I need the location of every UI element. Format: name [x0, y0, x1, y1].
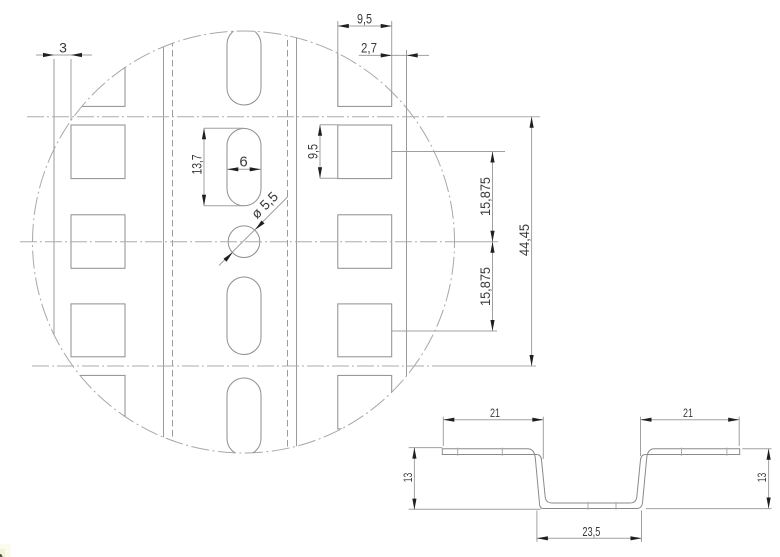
svg-text:9,5: 9,5	[357, 10, 372, 26]
svg-text:21: 21	[490, 408, 500, 420]
svg-text:2,7: 2,7	[361, 40, 377, 56]
svg-text:9,5: 9,5	[305, 144, 321, 159]
svg-text:ø 5,5: ø 5,5	[248, 188, 281, 221]
svg-text:3: 3	[59, 39, 67, 55]
svg-text:15,875: 15,875	[478, 267, 493, 306]
svg-text:44,45: 44,45	[517, 224, 532, 256]
svg-text:15,875: 15,875	[478, 177, 493, 216]
svg-text:13,7: 13,7	[189, 154, 205, 174]
svg-text:23,5: 23,5	[582, 525, 600, 539]
svg-text:21: 21	[683, 408, 693, 420]
svg-text:13: 13	[757, 473, 769, 483]
svg-text:6: 6	[239, 154, 247, 171]
svg-text:13: 13	[403, 473, 415, 483]
